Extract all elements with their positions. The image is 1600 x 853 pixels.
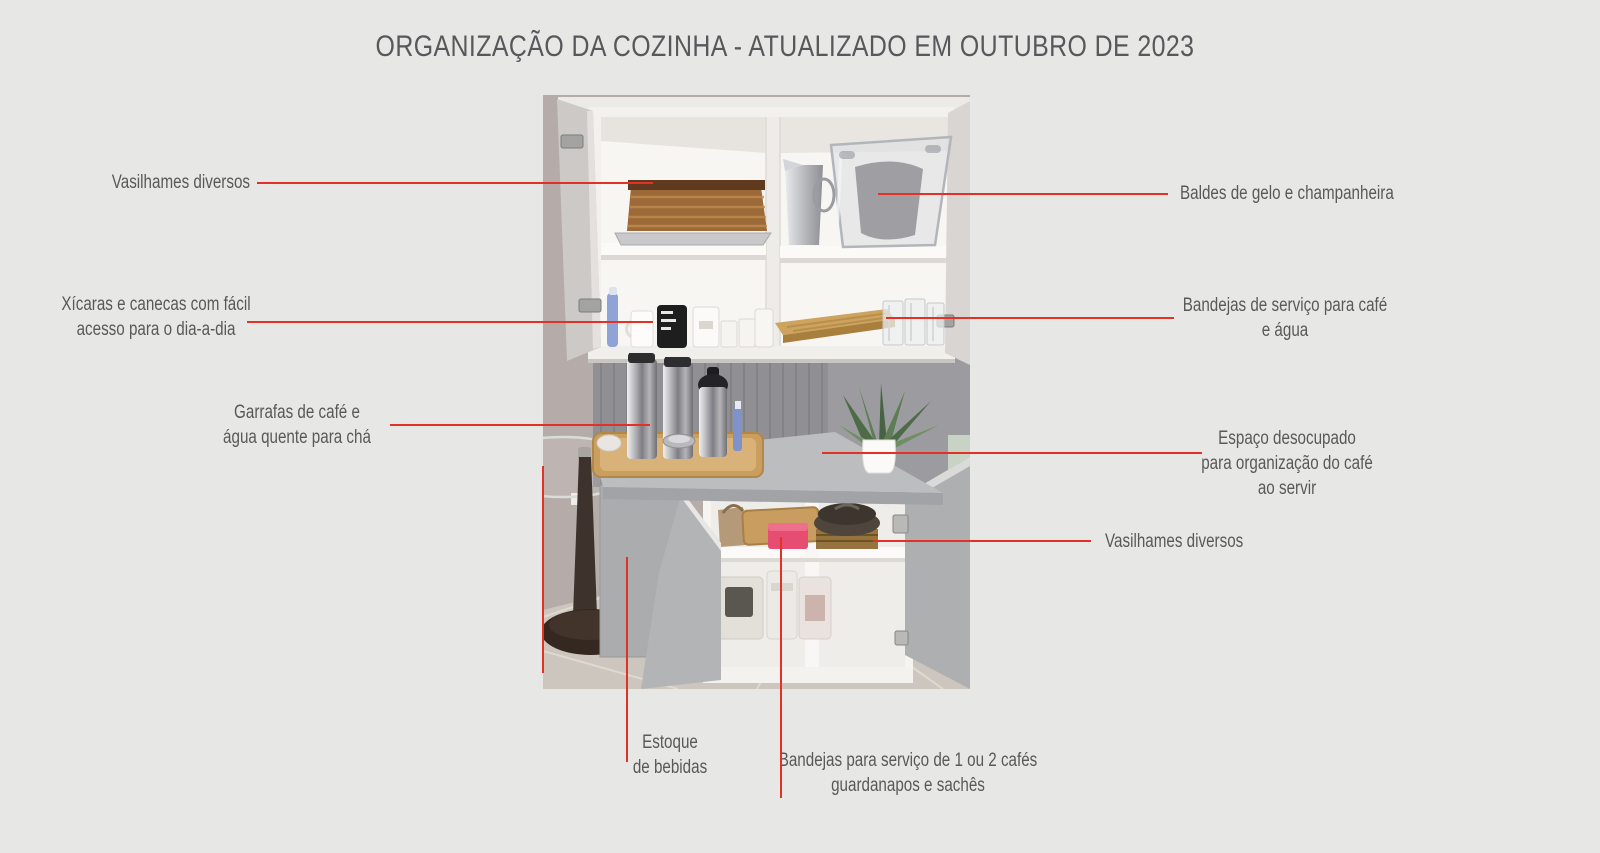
annotation-text: de bebidas <box>590 755 750 780</box>
annotation-text: Garrafas de café e <box>177 400 417 425</box>
annotation-label-vasilhames-bottom: Vasilhames diversos <box>1105 529 1243 554</box>
annotation-label-vasilhames-top: Vasilhames diversos <box>98 170 250 195</box>
pump-thermos <box>698 367 728 457</box>
kitchen-photo-illustration <box>543 95 970 689</box>
annotation-text: Vasilhames diversos <box>98 170 250 195</box>
annotation-text: guardanapos e sachês <box>748 773 1068 798</box>
annotation-text: e água <box>1157 318 1413 343</box>
page-title: ORGANIZAÇÃO DA COZINHA - ATUALIZADO EM O… <box>133 30 1436 64</box>
annotation-text: água quente para chá <box>177 425 417 450</box>
annotation-label-garrafas: Garrafas de café e água quente para chá <box>177 400 417 450</box>
hinge-icon <box>561 135 583 148</box>
stacked-round-trays <box>814 503 880 549</box>
annotation-line-estoque <box>626 557 628 762</box>
sugar-bowl <box>597 435 621 451</box>
wrapped-packages <box>717 571 831 639</box>
hinge-icon <box>579 299 601 312</box>
hinge-icon <box>895 631 908 645</box>
annotation-line-bandejas-1ou2 <box>780 537 782 798</box>
annotation-text: Vasilhames diversos <box>1105 529 1243 554</box>
small-bottle <box>733 407 742 451</box>
annotation-line-vasilhames-bottom <box>873 540 1091 542</box>
annotation-label-espaco: Espaço desocupado para organização do ca… <box>1159 426 1415 501</box>
annotation-line-garrafas <box>390 424 650 426</box>
annotation-line-bandejas-servico <box>886 317 1174 319</box>
coffee-thermos <box>627 353 657 459</box>
annotation-text: para organização do café <box>1159 451 1415 476</box>
annotation-text: Bandejas de serviço para café <box>1157 293 1413 318</box>
annotation-label-baldes: Baldes de gelo e champanheira <box>1180 181 1394 206</box>
annotation-line-baldes <box>878 193 1168 195</box>
annotation-line-left-edge <box>542 466 544 673</box>
annotation-line-espaco <box>822 452 1202 454</box>
annotation-text: Baldes de gelo e champanheira <box>1180 181 1394 206</box>
annotation-text: Estoque <box>590 730 750 755</box>
tan-bag <box>718 507 746 547</box>
shelf-right <box>780 246 948 258</box>
annotation-label-bandejas-servico: Bandejas de serviço para café e água <box>1157 293 1413 343</box>
annotation-line-xicaras <box>247 321 653 323</box>
annotation-label-estoque: Estoque de bebidas <box>590 730 750 780</box>
annotation-line-vasilhames-top <box>257 182 653 184</box>
champagne-bucket-acrylic <box>831 137 951 247</box>
wicker-baskets <box>615 180 771 245</box>
annotation-label-bandejas-1ou2: Bandejas para serviço de 1 ou 2 cafés gu… <box>748 748 1068 798</box>
annotation-text: Xícaras e canecas com fácil <box>36 292 276 317</box>
annotation-text: Bandejas para serviço de 1 ou 2 cafés <box>748 748 1068 773</box>
kitchen-photo <box>543 95 970 689</box>
annotation-text: ao servir <box>1159 476 1415 501</box>
hinge-icon <box>893 515 908 533</box>
plant-pot <box>863 440 896 473</box>
annotation-text: Espaço desocupado <box>1159 426 1415 451</box>
annotation-label-xicaras: Xícaras e canecas com fácil acesso para … <box>36 292 276 342</box>
annotation-text: acesso para o dia-a-dia <box>36 317 276 342</box>
